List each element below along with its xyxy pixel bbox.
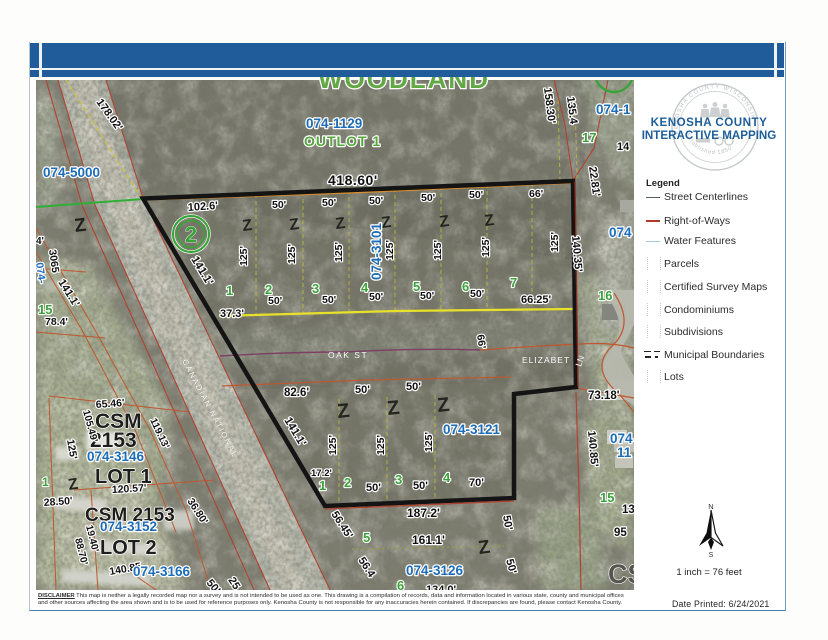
svg-text:78.4': 78.4' [45,316,68,328]
svg-text:14: 14 [617,141,630,153]
svg-text:074-3146: 074-3146 [87,449,145,464]
svg-text:6: 6 [397,578,404,590]
svg-text:Z: Z [436,394,450,417]
svg-text:074-3166: 074-3166 [133,564,191,579]
svg-text:134.0': 134.0' [426,584,457,590]
svg-text:50': 50' [322,294,336,306]
svg-text:50': 50' [421,192,435,204]
svg-text:Z: Z [386,397,400,420]
svg-text:Z: Z [336,400,350,423]
svg-text:13: 13 [622,504,634,516]
svg-text:125': 125' [375,435,387,455]
svg-text:074-1129: 074-1129 [306,116,362,131]
svg-text:50': 50' [369,291,383,303]
svg-text:17: 17 [582,130,596,145]
svg-text:50': 50' [470,288,484,300]
svg-text:7: 7 [510,275,517,290]
svg-text:074-5000: 074-5000 [43,165,100,180]
svg-text:95: 95 [614,527,627,539]
svg-text:102.6': 102.6' [187,200,218,214]
svg-text:50': 50' [406,381,421,393]
svg-text:4: 4 [443,470,451,485]
svg-text:125': 125' [480,237,492,257]
svg-text:65.46': 65.46' [95,397,125,411]
svg-text:82.6': 82.6' [284,387,309,399]
svg-text:125': 125' [432,240,444,260]
svg-text:73.18': 73.18' [588,390,620,402]
svg-text:50': 50' [355,384,370,396]
svg-text:1: 1 [226,283,233,298]
svg-text:125': 125' [238,246,250,266]
svg-text:66': 66' [529,188,543,200]
svg-text:OAK ST: OAK ST [328,350,368,360]
svg-text:16: 16 [598,288,612,303]
svg-text:6: 6 [462,279,469,294]
svg-text:3: 3 [312,281,319,296]
svg-text:125': 125' [423,432,435,452]
svg-text:50': 50' [366,482,381,494]
svg-text:CS: CS [608,559,634,589]
svg-text:187.2': 187.2' [407,506,440,520]
svg-text:50': 50' [369,195,383,207]
svg-text:418.60': 418.60' [328,172,378,188]
svg-text:4': 4' [36,236,44,247]
svg-text:37.3': 37.3' [220,308,244,320]
svg-text:66': 66' [474,334,488,350]
svg-text:50': 50' [268,295,282,307]
svg-text:OUTLOT 1: OUTLOT 1 [304,133,381,149]
svg-text:2: 2 [344,475,351,490]
svg-text:074-3101: 074-3101 [369,222,384,280]
svg-text:50': 50' [322,197,336,209]
svg-text:074: 074 [609,225,632,240]
svg-text:15: 15 [38,302,52,317]
svg-text:LOT 2: LOT 2 [100,537,157,559]
svg-text:074-3152: 074-3152 [100,519,157,534]
svg-text:074-: 074- [36,262,48,285]
svg-text:11: 11 [617,445,632,460]
svg-text:1: 1 [319,478,326,493]
svg-text:125': 125' [327,435,339,455]
svg-text:074: 074 [610,431,633,446]
svg-text:66.25': 66.25' [521,294,552,306]
svg-text:3: 3 [395,472,402,487]
svg-text:125': 125' [286,244,298,264]
svg-text:161.1': 161.1' [412,533,445,547]
svg-text:50': 50' [420,290,434,302]
svg-text:28.50': 28.50' [43,495,73,509]
svg-text:120.57': 120.57' [112,482,147,496]
svg-text:074-3121: 074-3121 [443,422,501,437]
svg-text:50': 50' [469,189,483,201]
svg-text:S: S [709,552,714,559]
svg-text:074-1: 074-1 [596,102,631,117]
svg-text:125': 125' [549,232,561,252]
svg-text:125': 125' [333,242,345,262]
svg-text:15: 15 [600,490,614,505]
svg-text:70': 70' [469,477,484,489]
svg-text:074-3126: 074-3126 [406,563,464,578]
svg-text:2: 2 [185,222,197,247]
svg-text:4: 4 [361,280,369,295]
svg-text:5: 5 [363,530,370,545]
svg-text:1: 1 [42,475,49,489]
svg-text:125': 125' [384,240,396,260]
svg-text:N: N [708,502,713,511]
svg-text:ELIZABET: ELIZABET [522,355,570,365]
svg-text:50': 50' [413,480,428,492]
svg-text:50': 50' [272,199,286,211]
